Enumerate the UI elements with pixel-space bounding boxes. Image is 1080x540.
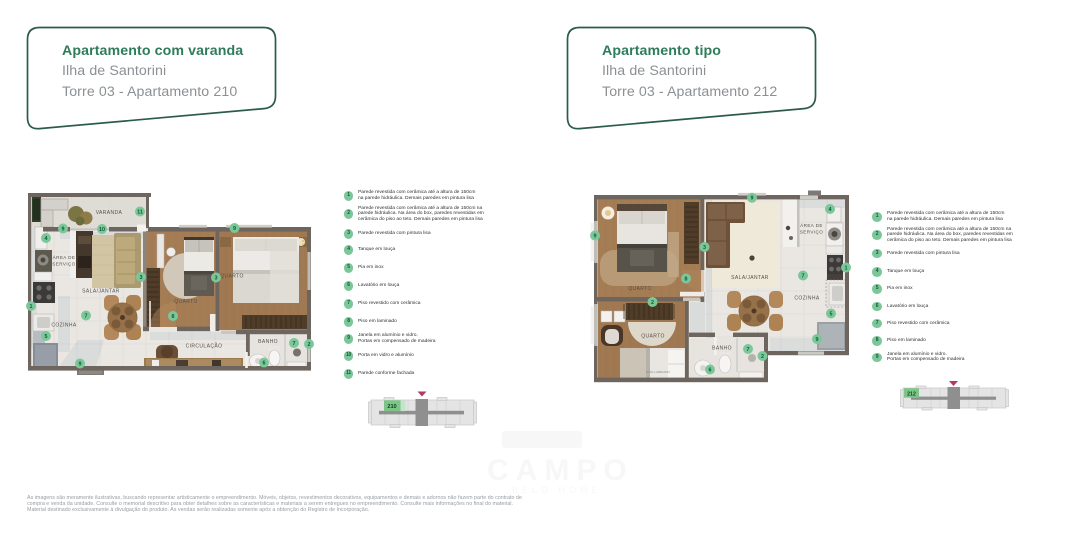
svg-text:11: 11 <box>137 209 143 215</box>
svg-text:COZINHA: COZINHA <box>794 296 820 302</box>
svg-text:ÁREA DE: ÁREA DE <box>53 254 76 260</box>
svg-text:4: 4 <box>829 207 832 213</box>
svg-text:QUARTO: QUARTO <box>641 333 665 339</box>
svg-text:ÁREA DE: ÁREA DE <box>800 222 823 228</box>
svg-text:8: 8 <box>685 276 688 282</box>
svg-text:CAMPO: CAMPO <box>487 454 634 487</box>
svg-text:6: 6 <box>263 360 266 366</box>
svg-text:3: 3 <box>703 245 706 251</box>
svg-text:COZINHA: COZINHA <box>51 323 77 329</box>
svg-text:QUARTO: QUARTO <box>220 274 244 280</box>
svg-text:QUARTO: QUARTO <box>628 286 652 292</box>
svg-text:6: 6 <box>709 367 712 373</box>
svg-text:2: 2 <box>761 354 764 360</box>
svg-text:SALA/JANTAR: SALA/JANTAR <box>731 275 769 281</box>
svg-text:BANHO: BANHO <box>712 346 732 352</box>
svg-text:210: 210 <box>387 404 396 410</box>
svg-text:10: 10 <box>99 227 105 233</box>
svg-text:212: 212 <box>907 391 916 397</box>
svg-text:3: 3 <box>215 275 218 281</box>
svg-text:SERVIÇO: SERVIÇO <box>800 229 823 234</box>
svg-text:7: 7 <box>802 273 805 279</box>
svg-text:9: 9 <box>594 233 597 239</box>
svg-text:QUARTO: QUARTO <box>174 299 198 305</box>
svg-text:9: 9 <box>62 226 65 232</box>
svg-text:CIRCULAÇÃO: CIRCULAÇÃO <box>186 343 223 350</box>
svg-text:9: 9 <box>79 361 82 367</box>
svg-text:SERVIÇO: SERVIÇO <box>52 261 75 266</box>
svg-text:3: 3 <box>140 275 143 281</box>
svg-text:7: 7 <box>293 341 296 347</box>
svg-text:SALA/JANTAR: SALA/JANTAR <box>82 289 120 295</box>
svg-text:8: 8 <box>172 314 175 320</box>
svg-text:BELO HOME: BELO HOME <box>512 485 602 495</box>
svg-text:2: 2 <box>651 300 654 306</box>
svg-text:9: 9 <box>751 196 754 202</box>
svg-text:1: 1 <box>30 304 33 310</box>
svg-text:9: 9 <box>816 337 819 343</box>
svg-text:9: 9 <box>233 226 236 232</box>
svg-text:5: 5 <box>45 334 48 340</box>
svg-text:5: 5 <box>830 311 833 317</box>
svg-text:7: 7 <box>747 347 750 353</box>
svg-text:2: 2 <box>308 342 311 348</box>
svg-text:4: 4 <box>45 236 48 242</box>
svg-text:BANHO: BANHO <box>258 339 278 345</box>
svg-text:1: 1 <box>845 265 848 271</box>
svg-text:VARANDA: VARANDA <box>96 210 123 216</box>
svg-text:7: 7 <box>85 313 88 319</box>
svg-text:PISO LAMINADO: PISO LAMINADO <box>646 370 670 374</box>
